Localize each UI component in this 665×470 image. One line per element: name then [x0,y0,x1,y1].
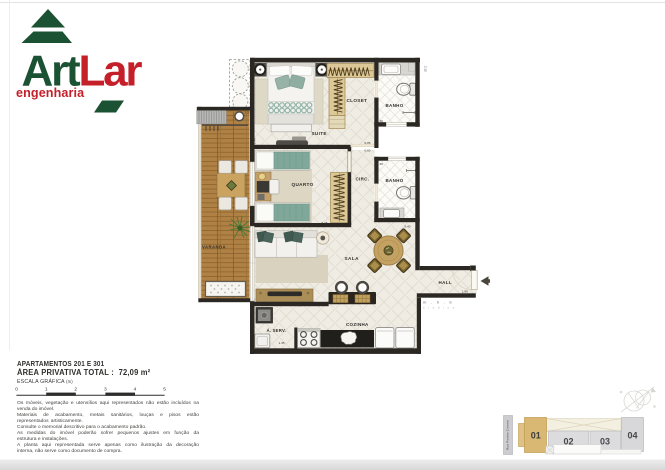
svg-text:01: 01 [531,431,541,441]
svg-text:0.60: 0.60 [365,148,371,152]
svg-text:Rua Pontes Correia: Rua Pontes Correia [505,420,509,450]
svg-text:BANHO: BANHO [386,178,404,183]
svg-text:1: 1 [45,387,48,393]
svg-text:s t u d i o s: s t u d i o s [423,306,456,310]
svg-text:04: 04 [627,431,637,441]
svg-text:VARANDA: VARANDA [202,245,226,250]
svg-text:Á. SERV.: Á. SERV. [267,328,287,333]
svg-text:2: 2 [74,387,77,393]
svg-text:CLOSET: CLOSET [347,98,368,103]
svg-text:QUARTO: QUARTO [292,182,314,187]
svg-text:2.48: 2.48 [252,138,256,144]
svg-text:4: 4 [134,387,137,393]
svg-text:BANHO: BANHO [386,103,404,108]
svg-text:4.90: 4.90 [296,303,302,307]
svg-text:0.85: 0.85 [365,141,371,145]
svg-text:HALL: HALL [439,280,453,285]
svg-text:m . h . b: m . h . b [423,301,454,305]
svg-text:SALA: SALA [345,256,360,261]
svg-text:1.90: 1.90 [462,290,468,294]
svg-text:1.00: 1.00 [245,111,251,115]
svg-text:engenharia: engenharia [16,86,85,100]
svg-text:SUITE: SUITE [312,131,327,136]
svg-text:COZINHA: COZINHA [346,322,369,327]
svg-text:02: 02 [563,437,573,447]
svg-text:3: 3 [104,387,107,393]
svg-text:1.35: 1.35 [279,341,285,345]
svg-text:0: 0 [15,387,18,393]
svg-text:CIRC.: CIRC. [356,177,370,182]
svg-text:5: 5 [163,387,166,393]
svg-text:1.30: 1.30 [377,119,383,123]
svg-text:5.15: 5.15 [322,221,328,225]
svg-text:2.10: 2.10 [424,66,428,72]
svg-text:03: 03 [600,437,610,447]
svg-text:1.30: 1.30 [377,162,383,166]
svg-text:5.40: 5.40 [405,225,411,229]
